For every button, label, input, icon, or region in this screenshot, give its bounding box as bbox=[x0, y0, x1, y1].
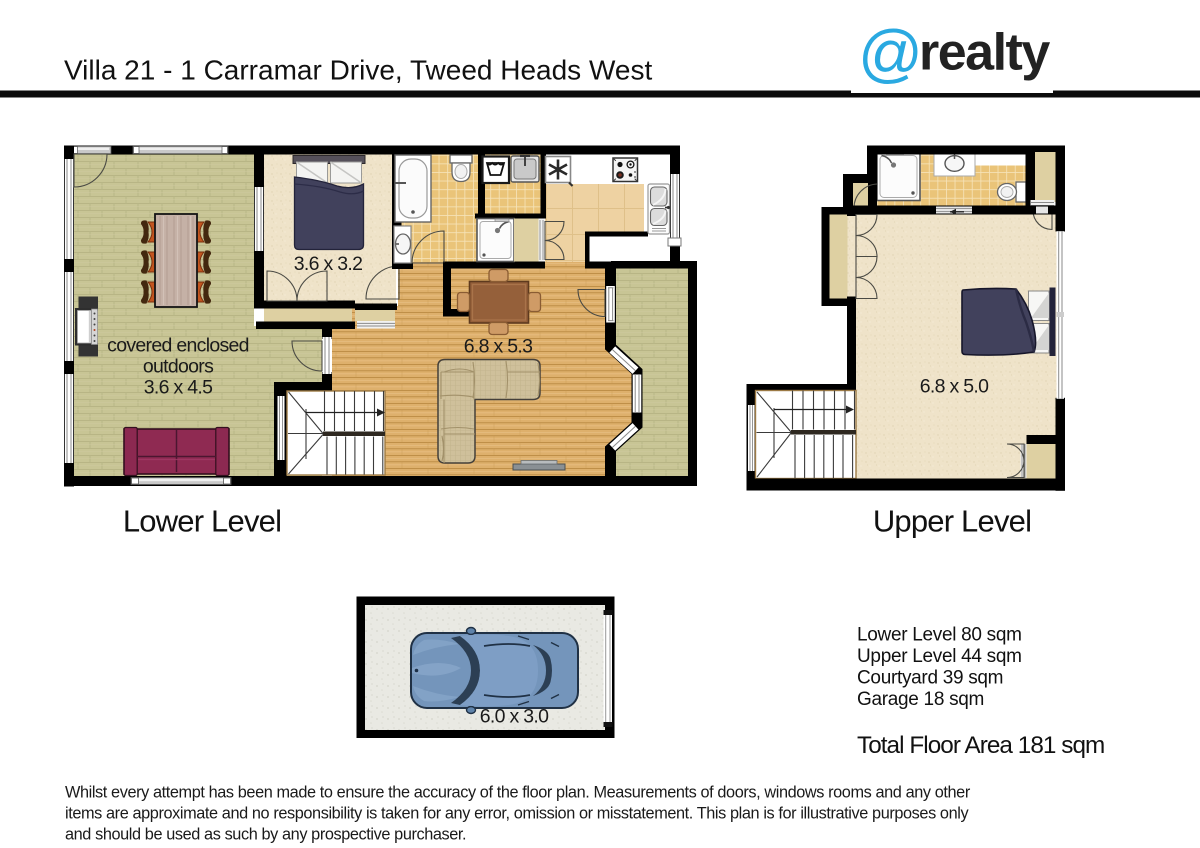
svg-text:Total Floor Area 181 sqm: Total Floor Area 181 sqm bbox=[857, 732, 1104, 759]
svg-text:6.0 x 3.0: 6.0 x 3.0 bbox=[480, 706, 549, 728]
svg-text:6.8 x 5.3: 6.8 x 5.3 bbox=[464, 336, 533, 358]
svg-text:3.6 x 3.2: 3.6 x 3.2 bbox=[294, 253, 363, 275]
svg-text:Upper Level: Upper Level bbox=[873, 504, 1031, 539]
svg-text:@: @ bbox=[858, 17, 923, 89]
svg-text:Garage 18 sqm: Garage 18 sqm bbox=[857, 689, 984, 710]
svg-text:Whilst every attempt has been: Whilst every attempt has been made to en… bbox=[65, 784, 971, 802]
svg-text:outdoors: outdoors bbox=[143, 356, 214, 378]
svg-text:realty: realty bbox=[919, 24, 1050, 82]
svg-text:Lower Level 80 sqm: Lower Level 80 sqm bbox=[857, 625, 1022, 646]
svg-text:Courtyard 39 sqm: Courtyard 39 sqm bbox=[857, 667, 1003, 688]
svg-text:and should be used as such by: and should be used as such by any prospe… bbox=[65, 826, 466, 844]
svg-text:Upper Level 44 sqm: Upper Level 44 sqm bbox=[857, 646, 1022, 667]
svg-text:3.6 x 4.5: 3.6 x 4.5 bbox=[144, 377, 213, 399]
svg-text:Villa 21 - 1 Carramar Drive, T: Villa 21 - 1 Carramar Drive, Tweed Heads… bbox=[64, 55, 652, 86]
svg-text:Lower Level: Lower Level bbox=[123, 504, 281, 539]
svg-text:6.8 x 5.0: 6.8 x 5.0 bbox=[920, 376, 989, 398]
svg-text:covered enclosed: covered enclosed bbox=[107, 335, 249, 357]
svg-text:items are approximate and no r: items are approximate and no responsibil… bbox=[65, 805, 969, 823]
